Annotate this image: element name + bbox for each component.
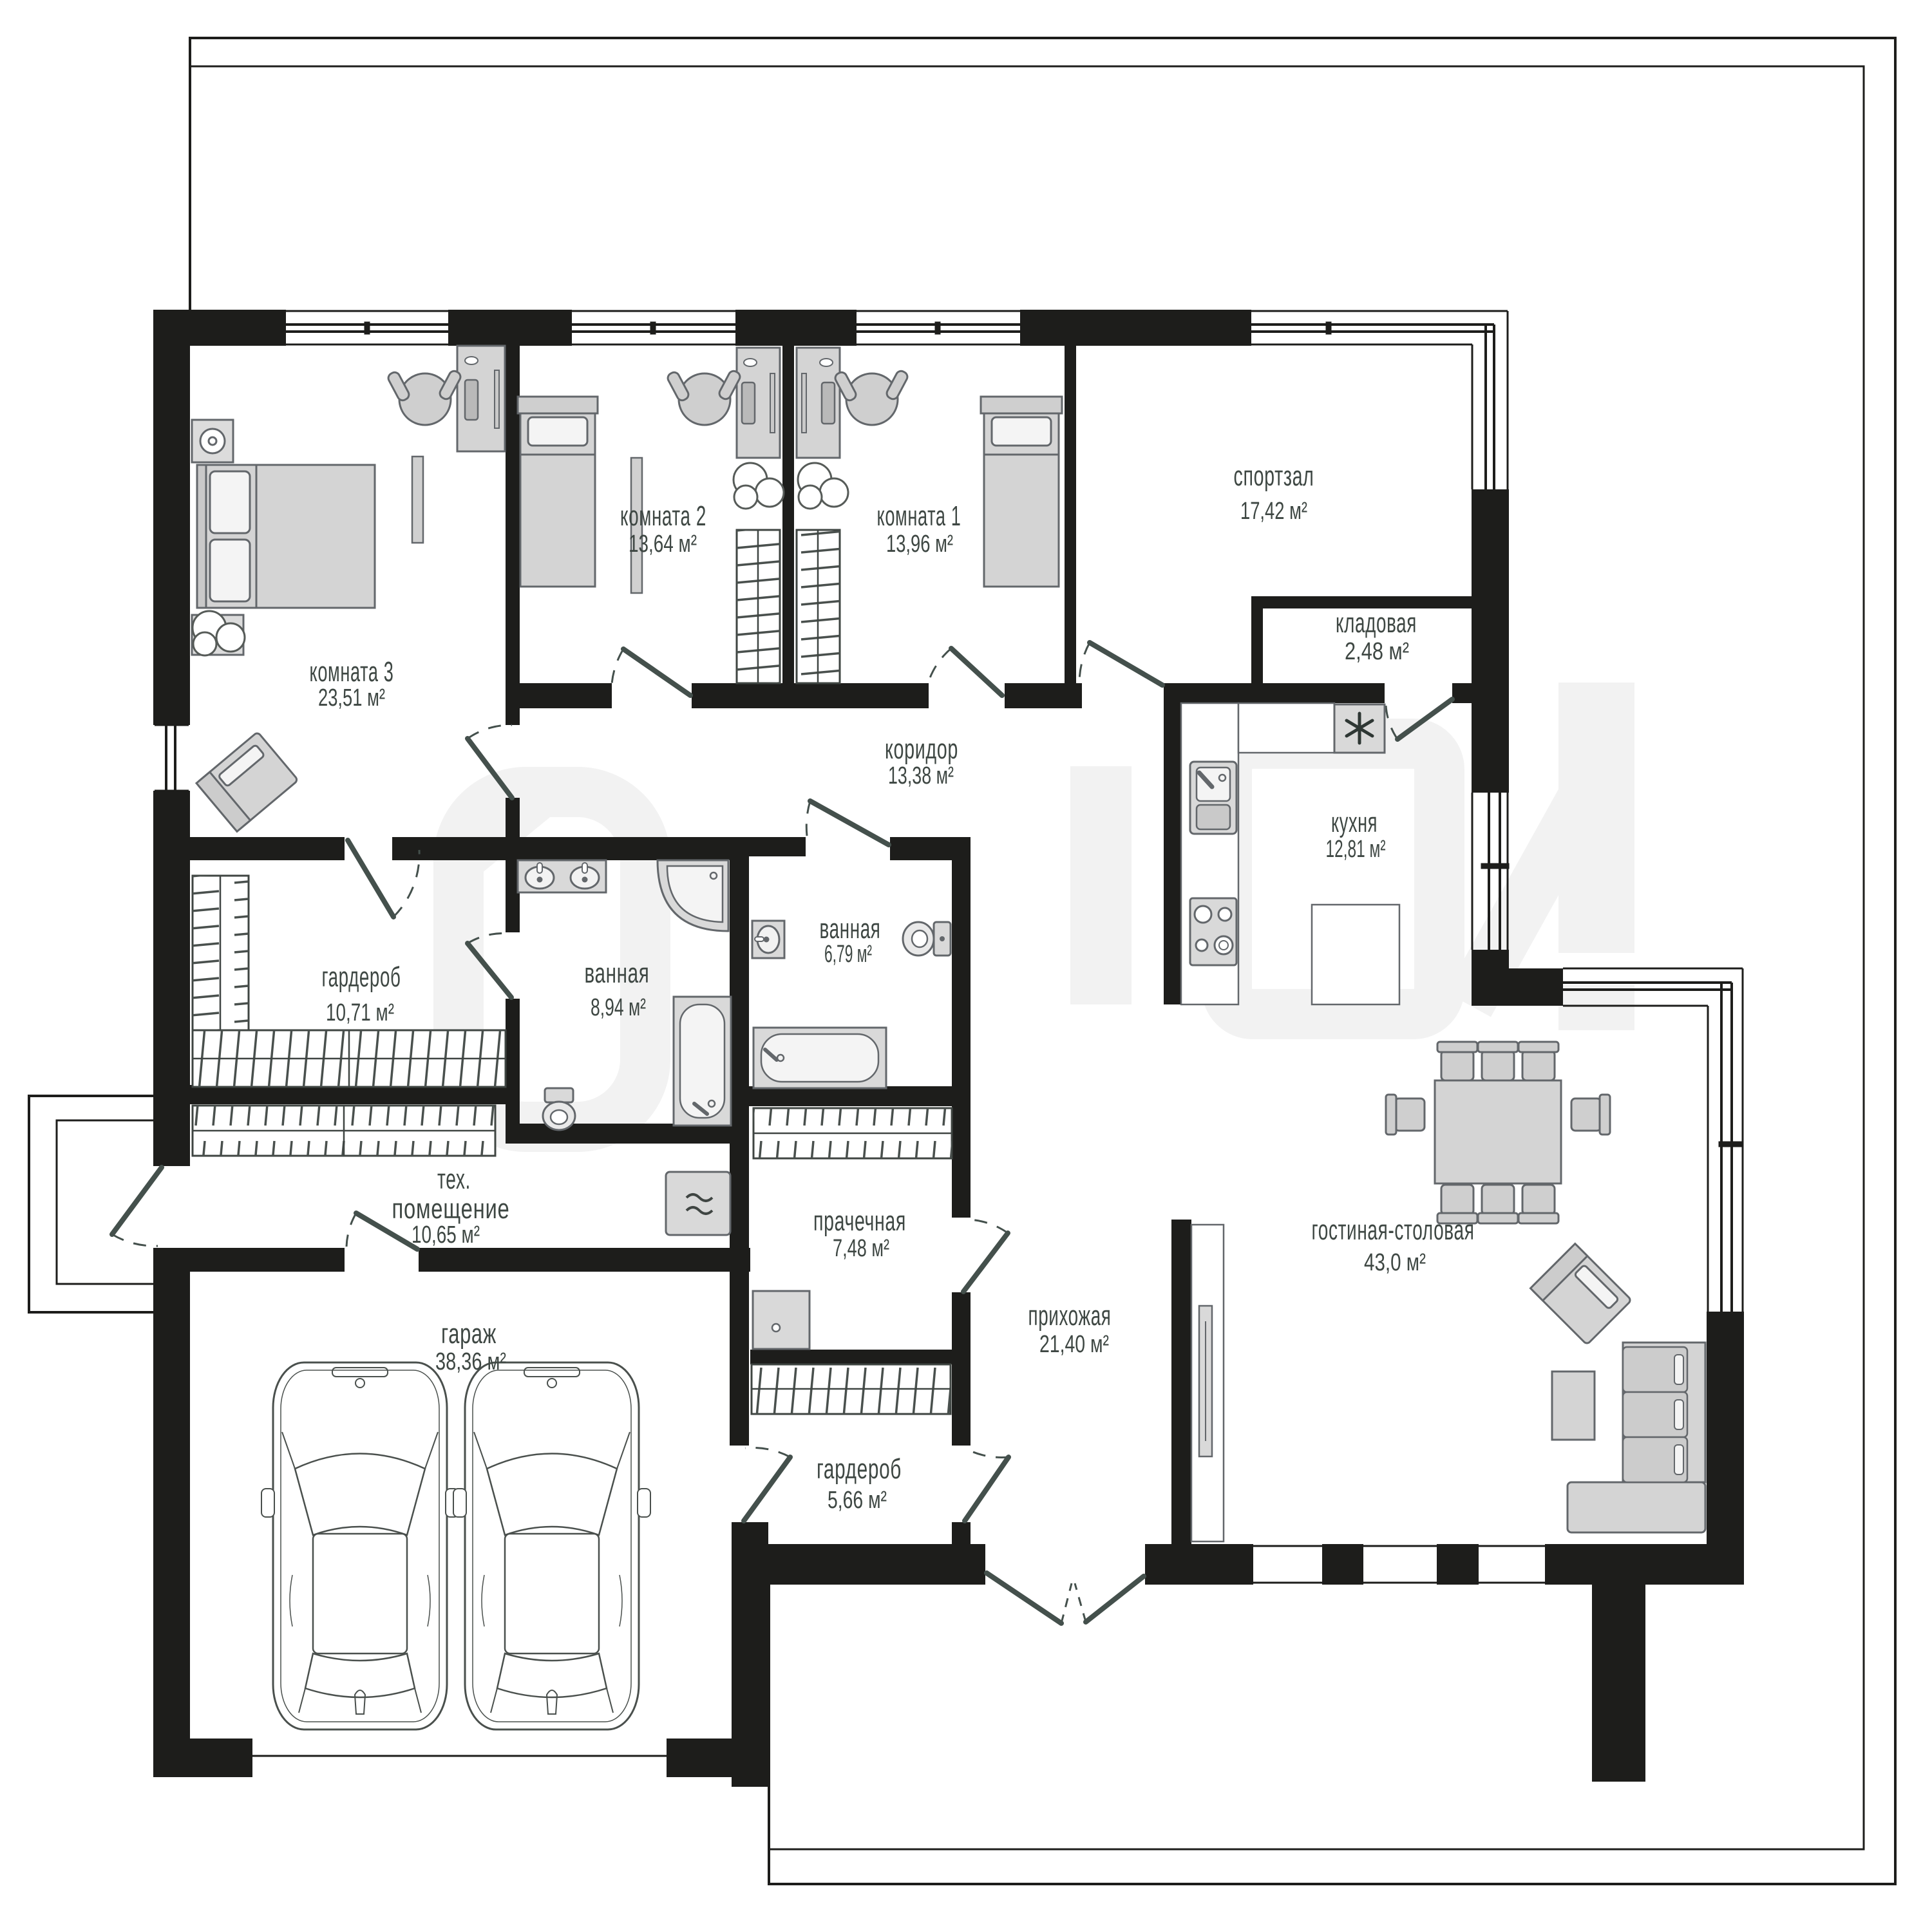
svg-text:коридор: коридор — [885, 733, 958, 765]
svg-text:кладовая: кладовая — [1336, 607, 1417, 639]
svg-text:5,66 м²: 5,66 м² — [828, 1487, 887, 1514]
svg-text:13,64 м²: 13,64 м² — [629, 531, 697, 558]
svg-text:43,0 м²: 43,0 м² — [1364, 1249, 1426, 1276]
svg-text:гардероб: гардероб — [322, 961, 401, 993]
svg-text:прачечная: прачечная — [813, 1205, 906, 1237]
svg-text:гараж: гараж — [441, 1318, 497, 1350]
svg-text:комната 1: комната 1 — [877, 500, 961, 532]
svg-text:7,48 м²: 7,48 м² — [833, 1235, 889, 1262]
svg-text:10,71 м²: 10,71 м² — [326, 999, 394, 1026]
svg-text:гардероб: гардероб — [817, 1453, 902, 1485]
svg-text:13,38 м²: 13,38 м² — [888, 762, 954, 789]
svg-text:тех.: тех. — [437, 1164, 471, 1195]
svg-text:6,79 м²: 6,79 м² — [824, 941, 872, 968]
svg-text:помещение: помещение — [392, 1193, 510, 1225]
svg-text:гостиная-столовая: гостиная-столовая — [1312, 1214, 1475, 1246]
svg-text:ванная: ванная — [585, 957, 650, 989]
svg-text:13,96 м²: 13,96 м² — [886, 531, 953, 558]
svg-text:23,51 м²: 23,51 м² — [318, 684, 385, 711]
svg-text:10,65 м²: 10,65 м² — [412, 1221, 480, 1249]
svg-text:ванная: ванная — [820, 913, 881, 945]
svg-text:спортзал: спортзал — [1234, 460, 1314, 492]
svg-text:38,36 м²: 38,36 м² — [435, 1348, 506, 1375]
svg-text:комната 3: комната 3 — [310, 656, 394, 688]
svg-text:2,48 м²: 2,48 м² — [1345, 638, 1409, 665]
svg-text:17,42 м²: 17,42 м² — [1240, 498, 1307, 525]
svg-text:12,81 м²: 12,81 м² — [1326, 836, 1386, 863]
svg-text:прихожая: прихожая — [1028, 1300, 1112, 1332]
svg-text:8,94 м²: 8,94 м² — [591, 994, 646, 1021]
svg-text:21,40 м²: 21,40 м² — [1039, 1331, 1109, 1358]
svg-text:комната 2: комната 2 — [620, 500, 706, 532]
svg-text:кухня: кухня — [1331, 807, 1378, 838]
